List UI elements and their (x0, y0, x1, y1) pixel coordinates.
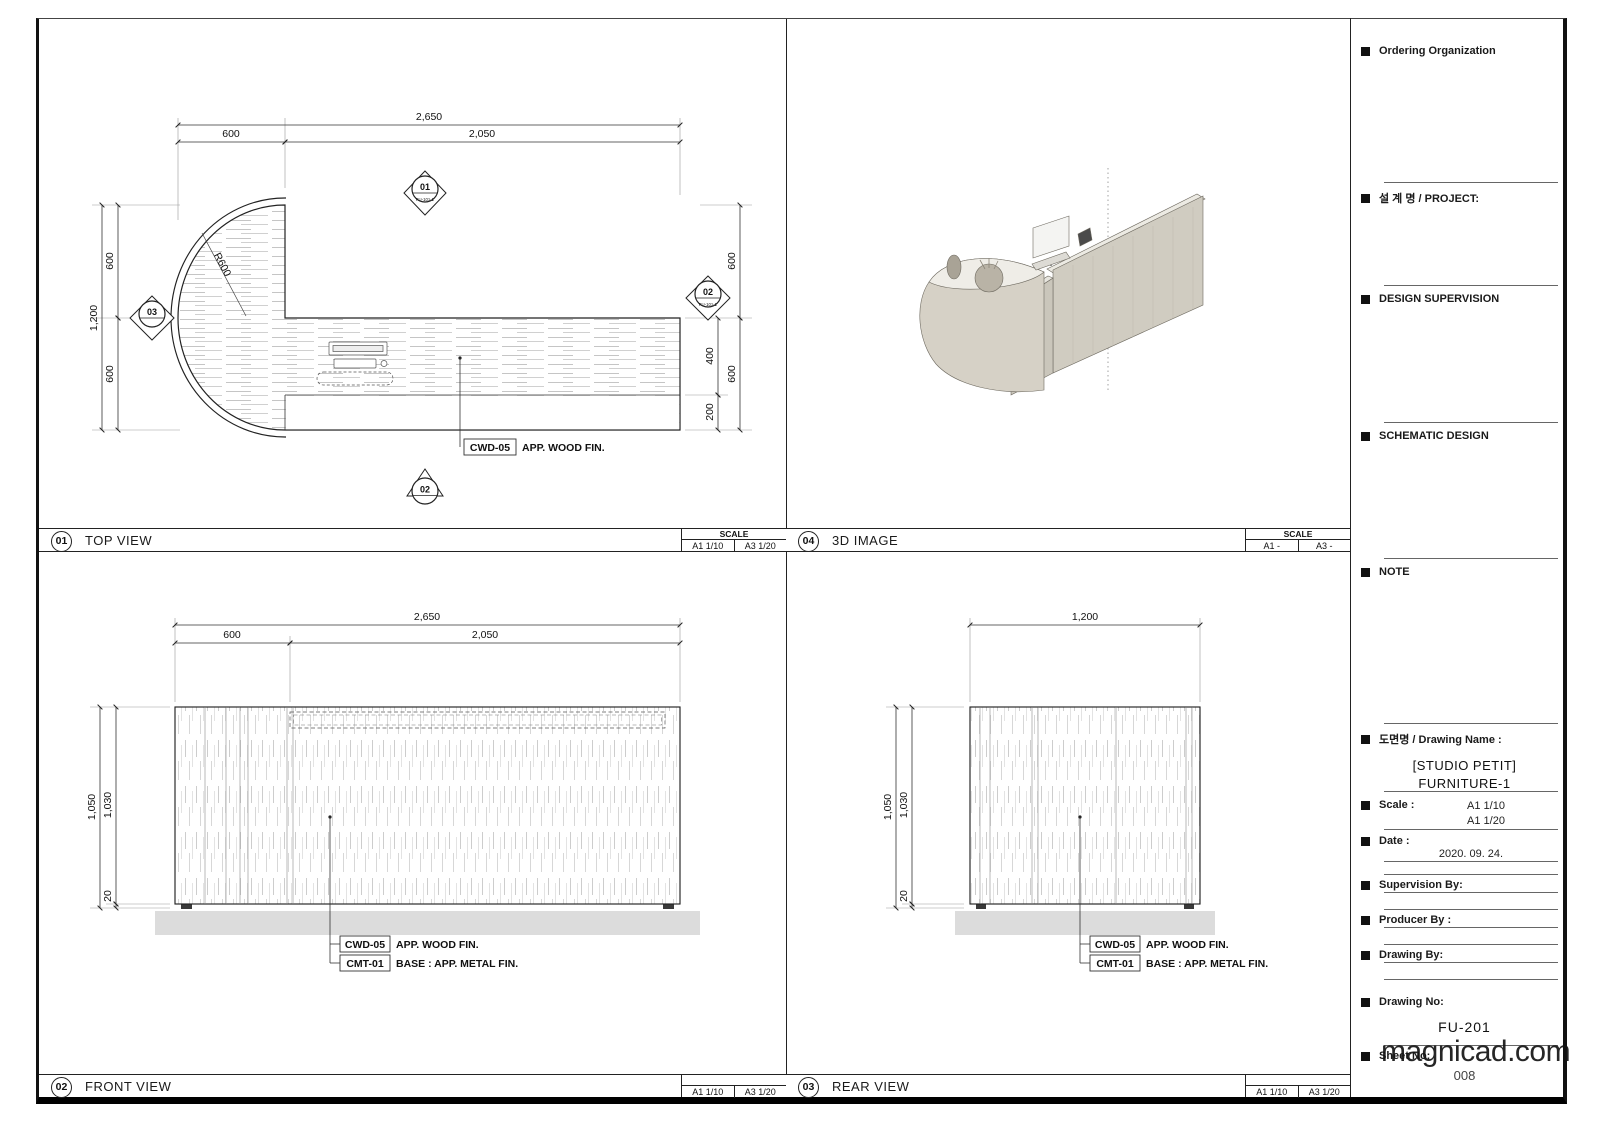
bullet-icon (1361, 951, 1370, 960)
scale-value-2: A1 1/20 (1441, 815, 1531, 827)
divider (1384, 861, 1558, 862)
dim-total-width: 2,650 (414, 611, 440, 623)
desk-rear-elevation (955, 707, 1215, 935)
panel-bar-3d-image: 04 3D IMAGE SCALE A1 - A3 - (786, 528, 1350, 552)
panel-bar-top-view: 01 TOP VIEW SCALE A1 1/10 A3 1/20 (39, 528, 786, 552)
drawing-no-value: FU-201 (1371, 1019, 1558, 1035)
dim-width-left: 600 (222, 128, 240, 140)
scale-a1: A1 - (1246, 540, 1298, 552)
panel-bar-rear-view: 03 REAR VIEW A1 1/10 A3 1/20 (786, 1074, 1350, 1097)
field-project: 설 계 명 / PROJECT: (1361, 190, 1560, 206)
panel-title-top-view: TOP VIEW (85, 529, 152, 552)
dim-counter-depth: 400 (704, 347, 716, 365)
section-marker-right: 02 FU-101-1 (686, 276, 730, 320)
dim-height-body: 1,030 (898, 792, 910, 818)
scale-header-blank (1246, 1075, 1350, 1086)
dim-width-right: 2,050 (469, 128, 495, 140)
dim-height-base: 20 (102, 890, 114, 902)
field-design-supervision: DESIGN SUPERVISION (1361, 293, 1560, 305)
dim-height-total: 1,050 (882, 794, 894, 820)
dim-total-width: 1,200 (1072, 611, 1098, 623)
bullet-icon (1361, 47, 1370, 56)
scale-a3: A3 1/20 (1298, 1086, 1351, 1098)
callout2-code: CMT-01 (346, 958, 384, 970)
svg-text:01: 01 (420, 182, 430, 192)
panel-number-02: 02 (51, 1077, 72, 1098)
divider (1384, 927, 1558, 928)
drawing-name-line2: FURNITURE-1 (1371, 776, 1558, 791)
dim-height-total: 1,050 (86, 794, 98, 820)
bullet-icon (1361, 295, 1370, 304)
divider (1384, 285, 1558, 286)
panel-title-front-view: FRONT VIEW (85, 1075, 171, 1098)
dim-total-width: 2,650 (416, 111, 442, 123)
scale-a1: A1 1/10 (682, 1086, 734, 1098)
bullet-icon (1361, 998, 1370, 1007)
sidebar-divider (1350, 19, 1351, 1097)
callout1-code: CWD-05 (345, 939, 385, 951)
scale-header: SCALE (1246, 529, 1350, 540)
callout1-code: CWD-05 (1095, 939, 1135, 951)
panel-number-04: 04 (798, 531, 819, 552)
divider (1384, 979, 1558, 980)
scale-a1: A1 1/10 (1246, 1086, 1298, 1098)
callout1-text: APP. WOOD FIN. (396, 939, 479, 951)
scale-table: SCALE A1 1/10 A3 1/20 (681, 529, 786, 551)
section-marker-left: 03 (130, 296, 174, 340)
callout1-text: APP. WOOD FIN. (1146, 939, 1229, 951)
field-date: Date : (1361, 835, 1560, 847)
dim-width-right: 2,050 (472, 629, 498, 641)
callout-code: CWD-05 (470, 442, 510, 454)
callout-text: APP. WOOD FIN. (522, 442, 605, 454)
top-view-drawing: 2,650 600 2,050 1,200 600 600 600 600 40… (40, 20, 786, 528)
scale-a3: A3 - (1298, 540, 1351, 552)
section-marker-top: 01 FU-101-1 (404, 171, 446, 215)
svg-text:02: 02 (703, 287, 713, 297)
field-ordering-organization: Ordering Organization (1361, 45, 1560, 57)
dim-total-depth: 1,200 (88, 305, 100, 331)
field-note: NOTE (1361, 566, 1560, 578)
watermark: magnicad.com (1381, 1035, 1570, 1069)
desk-3d-render (920, 194, 1205, 395)
drawing-sheet: 2,650 600 2,050 1,200 600 600 600 600 40… (0, 0, 1600, 1131)
field-drawing-by: Drawing By: (1361, 949, 1560, 961)
divider (1384, 944, 1558, 945)
svg-text:02: 02 (420, 485, 430, 495)
bullet-icon (1361, 837, 1370, 846)
callout2-text: BASE : APP. METAL FIN. (396, 958, 518, 970)
divider (1384, 723, 1558, 724)
panel-title-3d-image: 3D IMAGE (832, 529, 898, 552)
dim-right-bottom: 600 (726, 365, 738, 383)
rear-view-drawing: 1,200 1,050 1,030 20 CWD- (786, 552, 1347, 1077)
scale-a3: A3 1/20 (734, 1086, 787, 1098)
bullet-icon (1361, 1052, 1370, 1061)
divider (1384, 829, 1558, 830)
scale-table: A1 1/10 A3 1/20 (681, 1075, 786, 1097)
bullet-icon (1361, 568, 1370, 577)
divider (1384, 422, 1558, 423)
bullet-icon (1361, 916, 1370, 925)
field-drawing-no: Drawing No: (1361, 996, 1560, 1008)
svg-text:03: 03 (147, 307, 157, 317)
field-drawing-name: 도면명 / Drawing Name : (1361, 731, 1560, 747)
dim-shelf-depth: 200 (704, 403, 716, 421)
3d-image-drawing (786, 20, 1347, 528)
dim-height-base: 20 (898, 890, 910, 902)
scale-table: A1 1/10 A3 1/20 (1245, 1075, 1350, 1097)
divider (1384, 791, 1558, 792)
divider (1384, 558, 1558, 559)
divider (1384, 892, 1558, 893)
section-marker-bottom: 02 (407, 469, 443, 504)
dim-right-top: 600 (726, 252, 738, 270)
scale-header: SCALE (682, 529, 786, 540)
panel-number-01: 01 (51, 531, 72, 552)
scale-header-blank (682, 1075, 786, 1086)
field-supervision-by: Supervision By: (1361, 879, 1560, 891)
scale-table: SCALE A1 - A3 - (1245, 529, 1350, 551)
bullet-icon (1361, 881, 1370, 890)
scale-value-1: A1 1/10 (1441, 800, 1531, 812)
desk-front-elevation (155, 707, 700, 935)
divider (1384, 182, 1558, 183)
callout2-text: BASE : APP. METAL FIN. (1146, 958, 1268, 970)
dim-width-left: 600 (223, 629, 241, 641)
front-view-drawing: 2,650 600 2,050 1,050 1,030 20 (40, 552, 786, 1077)
divider (1384, 874, 1558, 875)
dim-height-body: 1,030 (102, 792, 114, 818)
divider (1384, 909, 1558, 910)
bullet-icon (1361, 735, 1370, 744)
dim-depth-bottom: 600 (104, 365, 116, 383)
panel-title-rear-view: REAR VIEW (832, 1075, 909, 1098)
floor-strip (155, 911, 700, 935)
callout2-code: CMT-01 (1096, 958, 1134, 970)
bullet-icon (1361, 801, 1370, 810)
title-block: Ordering Organization 설 계 명 / PROJECT: D… (1350, 18, 1564, 1097)
field-producer-by: Producer By : (1361, 914, 1560, 926)
panel-bar-front-view: 02 FRONT VIEW A1 1/10 A3 1/20 (39, 1074, 786, 1097)
scale-a1: A1 1/10 (682, 540, 734, 552)
svg-text:FU-101-1: FU-101-1 (416, 197, 435, 202)
floor-strip (955, 911, 1215, 935)
scale-a3: A3 1/20 (734, 540, 787, 552)
desk-plan: R600 (171, 198, 680, 437)
date-value: 2020. 09. 24. (1411, 848, 1531, 860)
bullet-icon (1361, 194, 1370, 203)
panel-number-03: 03 (798, 1077, 819, 1098)
bullet-icon (1361, 432, 1370, 441)
field-schematic-design: SCHEMATIC DESIGN (1361, 430, 1560, 442)
svg-text:FU-101-1: FU-101-1 (699, 302, 718, 307)
dim-depth-top: 600 (104, 252, 116, 270)
divider (1384, 962, 1558, 963)
sheet-no-value: 008 (1371, 1068, 1558, 1083)
drawing-name-line1: [STUDIO PETIT] (1371, 758, 1558, 773)
